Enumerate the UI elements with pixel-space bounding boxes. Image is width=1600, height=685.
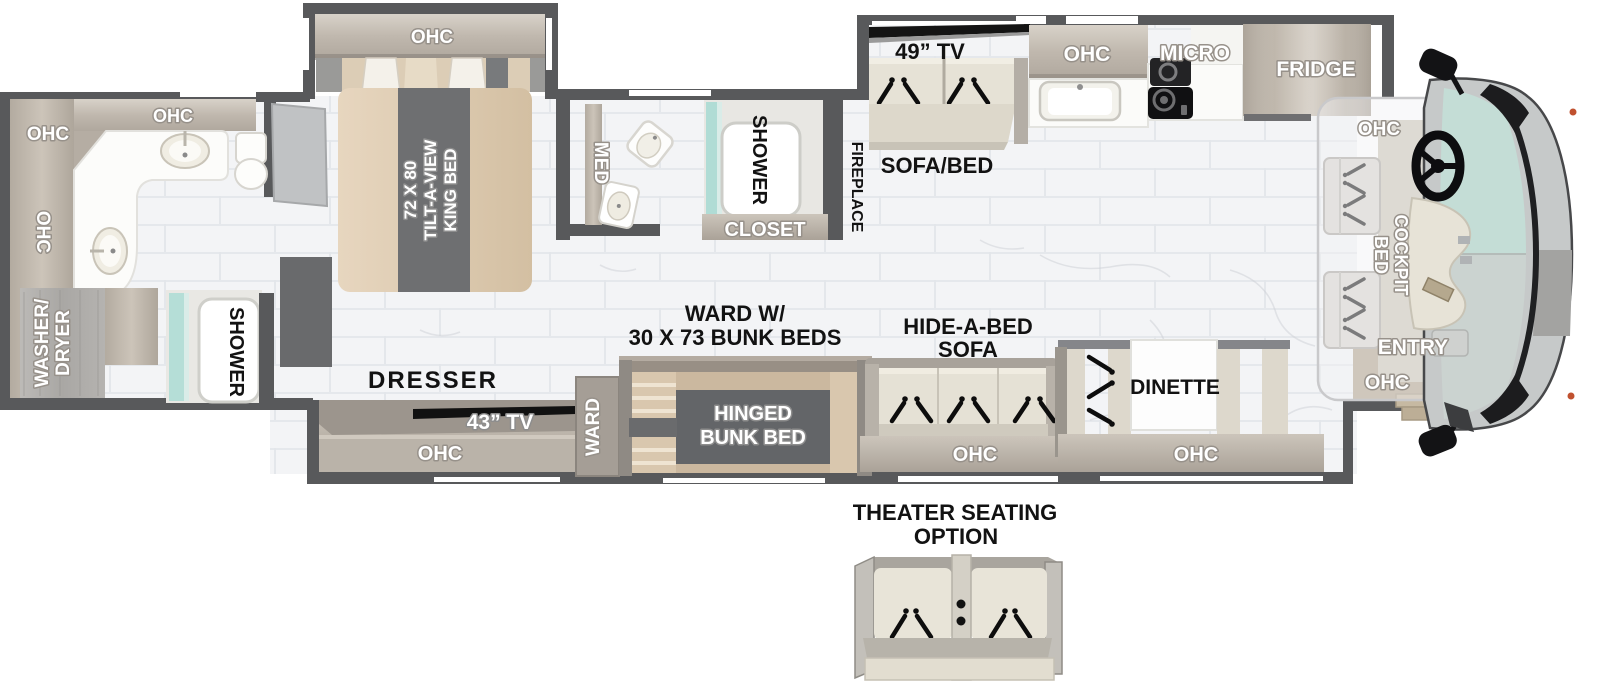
svg-text:OHC: OHC <box>418 443 462 465</box>
svg-text:ENTRY: ENTRY <box>1378 336 1448 359</box>
svg-text:49” TV: 49” TV <box>895 39 965 64</box>
svg-text:SHOWER: SHOWER <box>225 307 247 398</box>
svg-text:OHC: OHC <box>411 27 454 48</box>
svg-text:THEATER SEATING: THEATER SEATING <box>853 500 1058 525</box>
svg-text:WASHER/: WASHER/ <box>32 298 53 387</box>
svg-text:KING BED: KING BED <box>441 148 460 231</box>
svg-text:DRYER: DRYER <box>53 310 74 376</box>
svg-text:MICRO: MICRO <box>1160 42 1230 65</box>
svg-text:72 X 80: 72 X 80 <box>401 161 420 220</box>
svg-text:30 X 73 BUNK BEDS: 30 X 73 BUNK BEDS <box>629 325 842 350</box>
svg-text:SOFA: SOFA <box>938 337 998 362</box>
svg-text:SHOWER: SHOWER <box>748 115 770 206</box>
svg-text:OHC: OHC <box>1358 119 1401 140</box>
svg-text:CLOSET: CLOSET <box>724 219 805 241</box>
svg-text:HIDE-A-BED: HIDE-A-BED <box>903 314 1033 339</box>
svg-text:COCKPIT: COCKPIT <box>1391 215 1411 296</box>
svg-text:WARD: WARD <box>583 398 604 456</box>
svg-text:BED: BED <box>1371 236 1391 274</box>
svg-text:TILT-A-VIEW: TILT-A-VIEW <box>421 139 440 241</box>
svg-text:FIREPLACE: FIREPLACE <box>848 142 865 233</box>
svg-text:MED: MED <box>590 142 611 184</box>
svg-text:DINETTE: DINETTE <box>1130 376 1220 399</box>
svg-text:OHC: OHC <box>953 444 997 466</box>
svg-text:OHC: OHC <box>1064 43 1111 66</box>
svg-text:FRIDGE: FRIDGE <box>1276 58 1355 81</box>
svg-text:OHC: OHC <box>27 124 70 145</box>
svg-text:OPTION: OPTION <box>914 524 998 549</box>
svg-text:BUNK BED: BUNK BED <box>700 427 806 449</box>
svg-text:DRESSER: DRESSER <box>368 367 498 394</box>
svg-text:OHC: OHC <box>1365 372 1409 394</box>
svg-text:43” TV: 43” TV <box>467 411 534 434</box>
svg-text:WARD W/: WARD W/ <box>685 301 785 326</box>
svg-text:OHC: OHC <box>32 211 53 254</box>
svg-text:HINGED: HINGED <box>714 403 792 425</box>
svg-text:SOFA/BED: SOFA/BED <box>881 153 993 178</box>
svg-text:OHC: OHC <box>1174 444 1218 466</box>
svg-text:OHC: OHC <box>153 106 193 126</box>
